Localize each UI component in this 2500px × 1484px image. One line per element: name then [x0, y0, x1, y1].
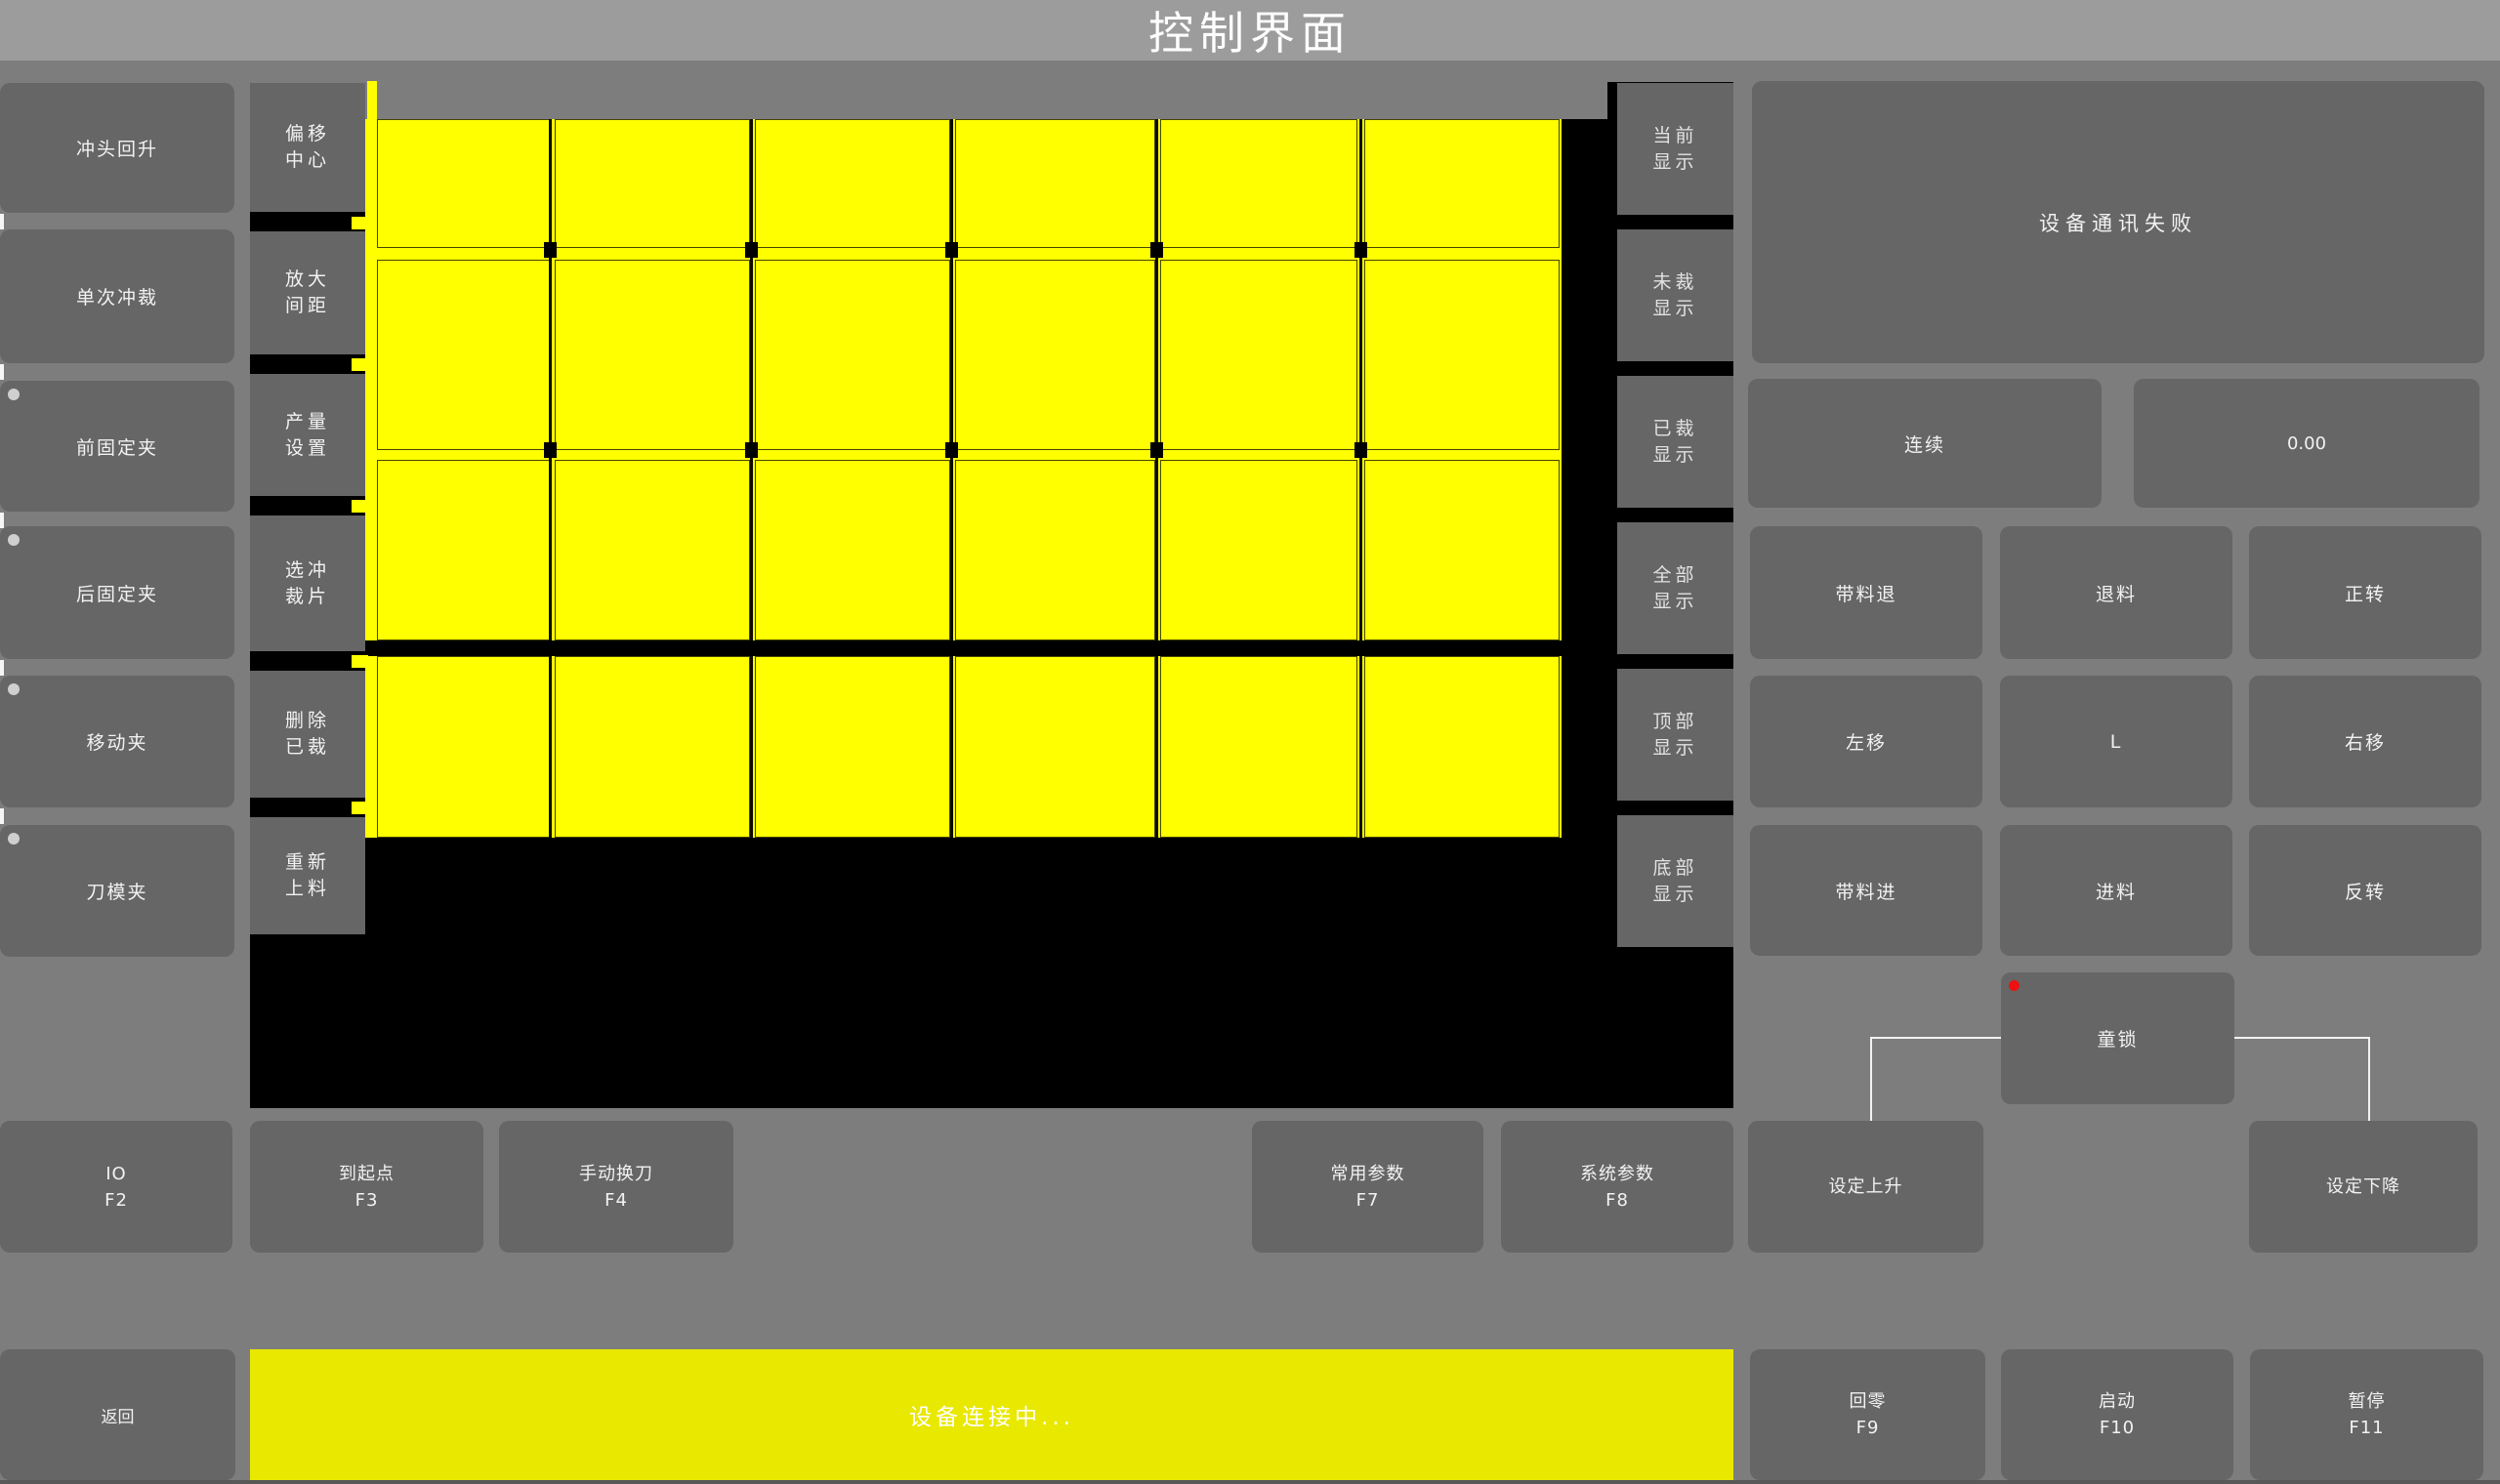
sheet-piece[interactable] [555, 260, 750, 450]
piece-separator [1359, 119, 1362, 838]
sheet-edge-tab [352, 802, 368, 814]
child-lock-button[interactable]: 童锁 [2001, 972, 2234, 1104]
tool-button-line2: 设置 [285, 435, 330, 462]
sheet-piece[interactable] [1364, 260, 1560, 450]
bottom-key-start-f10[interactable]: 启动F10 [2001, 1349, 2233, 1480]
fkey-code: F7 [1356, 1187, 1380, 1214]
tool-button-line2: 中心 [285, 147, 330, 174]
fkey-label: 常用参数 [1331, 1161, 1405, 1187]
fkey-button-common-params-f7[interactable]: 常用参数F7 [1252, 1121, 1483, 1253]
clamp-indicator-dot [8, 833, 20, 845]
left-button-label: 单次冲裁 [76, 283, 158, 309]
bottom-key-code: F10 [2100, 1415, 2135, 1441]
bottom-key-home-f9[interactable]: 回零F9 [1750, 1349, 1985, 1480]
separator-joint [745, 242, 758, 258]
separator-joint [544, 442, 557, 458]
display-button-show-bottom[interactable]: 底部显示 [1617, 815, 1733, 947]
tool-button-line1: 选冲 [285, 557, 330, 584]
value-text: 0.00 [2287, 433, 2326, 454]
edge-tick [0, 513, 4, 528]
tool-button-line2: 已裁 [285, 734, 330, 761]
connector-line [2234, 1037, 2368, 1039]
sheet-edge-tab [352, 358, 368, 371]
connection-status-bar: 设备连接中... [250, 1349, 1733, 1480]
sheet-piece[interactable] [755, 260, 950, 450]
tool-button-enlarge-spacing[interactable]: 放大间距 [250, 231, 365, 354]
sheet-piece[interactable] [555, 119, 750, 248]
connector-line [2368, 1037, 2370, 1121]
piece-separator [1155, 119, 1158, 838]
jog-button-label: 退料 [2096, 580, 2137, 606]
separator-joint [544, 242, 557, 258]
left-button-die-clamp[interactable]: 刀模夹 [0, 825, 234, 957]
tool-button-line1: 偏移 [285, 121, 330, 147]
left-button-punch-raise[interactable]: 冲头回升 [0, 83, 234, 213]
sheet [365, 119, 1562, 838]
bottom-key-code: F11 [2349, 1415, 2384, 1441]
tool-button-line1: 放大 [285, 267, 330, 293]
left-button-single-punch[interactable]: 单次冲裁 [0, 229, 234, 363]
left-button-label: 前固定夹 [76, 433, 158, 460]
fkey-label: 到起点 [339, 1161, 395, 1187]
mode-button[interactable]: 连续 [1748, 379, 2102, 508]
separator-joint [945, 242, 958, 258]
edge-tick [0, 808, 4, 824]
display-button-show-cut[interactable]: 已裁显示 [1617, 376, 1733, 508]
left-button-rear-clamp[interactable]: 后固定夹 [0, 526, 234, 659]
piece-separator [950, 119, 953, 838]
jog-button-label: 反转 [2345, 878, 2386, 904]
jog-button-label: 正转 [2345, 580, 2386, 606]
tool-button-line1: 重新 [285, 849, 330, 876]
separator-joint [1150, 442, 1163, 458]
fkey-label: 手动换刀 [579, 1161, 653, 1187]
left-button-label: 刀模夹 [86, 878, 147, 904]
sheet-piece[interactable] [1160, 260, 1357, 450]
title-bar: 控制界面 [0, 0, 2500, 61]
display-button-line2: 显示 [1652, 442, 1697, 469]
separator-joint [1354, 242, 1367, 258]
alert-dot-icon [2009, 980, 2020, 991]
separator-joint [745, 442, 758, 458]
clamp-indicator-dot [8, 389, 20, 400]
connector-line [1870, 1037, 1872, 1121]
tool-button-line1: 删除 [285, 708, 330, 734]
left-button-front-clamp[interactable]: 前固定夹 [0, 381, 234, 512]
sheet-piece[interactable] [755, 460, 950, 640]
bottom-key-label: 暂停 [2349, 1388, 2386, 1415]
jog-button-label: 右移 [2345, 728, 2386, 755]
display-button-line1: 已裁 [1652, 416, 1697, 442]
tool-button-yield-settings[interactable]: 产量设置 [250, 374, 365, 496]
fkey-button-set-raise[interactable]: 设定上升 [1748, 1121, 1983, 1253]
fkey-label: 系统参数 [1580, 1161, 1654, 1187]
fkey-code: F4 [604, 1187, 628, 1214]
left-button-label: 后固定夹 [76, 580, 158, 606]
bottom-key-label: 回零 [1850, 1388, 1887, 1415]
fkey-label: 设定上升 [1829, 1174, 1903, 1200]
tool-button-line1: 产量 [285, 409, 330, 435]
edge-tick [0, 214, 4, 229]
sheet-edge-tab [352, 217, 368, 229]
display-button-show-top[interactable]: 顶部显示 [1617, 669, 1733, 801]
jog-button-label: 左移 [1846, 728, 1887, 755]
piece-separator [549, 119, 552, 838]
sheet-piece[interactable] [377, 656, 550, 838]
tool-button-line2: 上料 [285, 876, 330, 902]
comm-status-panel: 设备通讯失败 [1752, 81, 2484, 363]
left-button-moving-clamp[interactable]: 移动夹 [0, 676, 234, 807]
piece-separator [750, 119, 753, 838]
back-button[interactable]: 返回 [0, 1349, 235, 1480]
sheet-piece[interactable] [555, 656, 750, 838]
tool-button-offset-center[interactable]: 偏移中心 [250, 83, 365, 212]
tool-button-line2: 间距 [285, 293, 330, 319]
jog-button-strip-back[interactable]: 带料退 [1750, 526, 1982, 659]
display-button-line1: 顶部 [1652, 709, 1697, 735]
value-display[interactable]: 0.00 [2134, 379, 2479, 508]
sheet-edge-tab [352, 655, 368, 668]
connector-line [1870, 1037, 2001, 1039]
tool-button-select-piece[interactable]: 选冲裁片 [250, 515, 365, 651]
bottom-edge-divider [0, 1480, 2500, 1484]
display-button-show-uncut[interactable]: 未裁显示 [1617, 229, 1733, 361]
separator-joint [945, 442, 958, 458]
fkey-button-manual-tool-change-f4[interactable]: 手动换刀F4 [499, 1121, 733, 1253]
display-button-show-all[interactable]: 全部显示 [1617, 522, 1733, 654]
sheet-piece[interactable] [955, 656, 1155, 838]
left-button-label: 冲头回升 [76, 135, 158, 161]
jog-button-label: 带料进 [1835, 878, 1896, 904]
sheet-piece[interactable] [755, 119, 950, 248]
jog-button-strip-forward[interactable]: 带料进 [1750, 825, 1982, 956]
fkey-label: IO [105, 1161, 126, 1187]
mode-label: 连续 [1904, 431, 1945, 457]
display-button-line2: 显示 [1652, 149, 1697, 176]
sheet-piece[interactable] [1364, 119, 1560, 248]
display-button-line2: 显示 [1652, 296, 1697, 322]
child-lock-label: 童锁 [2097, 1025, 2138, 1051]
display-button-line2: 显示 [1652, 882, 1697, 908]
jog-button-feed[interactable]: 进料 [2000, 825, 2232, 956]
sheet-piece[interactable] [555, 460, 750, 640]
fkey-label: 设定下降 [2326, 1174, 2400, 1200]
bottom-key-code: F9 [1856, 1415, 1880, 1441]
display-button-line1: 全部 [1652, 562, 1697, 589]
sheet-piece[interactable] [1160, 119, 1357, 248]
jog-button-unload[interactable]: 退料 [2000, 526, 2232, 659]
separator-joint [1150, 242, 1163, 258]
clamp-indicator-dot [8, 683, 20, 695]
sheet-edge-tab [352, 500, 368, 513]
jog-button-label: L [2110, 731, 2123, 753]
display-button-line1: 底部 [1652, 855, 1697, 882]
page-title: 控制界面 [1148, 0, 1352, 62]
bottom-key-label: 启动 [2099, 1388, 2136, 1415]
display-button-line2: 显示 [1652, 735, 1697, 762]
display-button-line2: 显示 [1652, 589, 1697, 615]
sheet-piece[interactable] [1160, 656, 1357, 838]
tool-button-delete-cut[interactable]: 删除已裁 [250, 671, 365, 798]
sheet-piece[interactable] [377, 460, 550, 640]
tool-button-line2: 裁片 [285, 584, 330, 610]
jog-button-forward-rotate[interactable]: 正转 [2249, 526, 2481, 659]
back-label: 返回 [102, 1403, 135, 1427]
left-button-label: 移动夹 [86, 728, 147, 755]
sheet-piece[interactable] [955, 119, 1155, 248]
fkey-code: F8 [1605, 1187, 1629, 1214]
sheet-piece[interactable] [377, 119, 550, 248]
jog-button-move-right[interactable]: 右移 [2249, 676, 2481, 807]
fkey-code: F3 [355, 1187, 379, 1214]
tool-button-reload-material[interactable]: 重新上料 [250, 817, 365, 934]
sheet-piece[interactable] [1364, 656, 1560, 838]
separator-joint [1354, 442, 1367, 458]
sheet-piece[interactable] [1160, 460, 1357, 640]
display-button-line1: 当前 [1652, 123, 1697, 149]
sheet-piece[interactable] [755, 656, 950, 838]
clamp-indicator-dot [8, 534, 20, 546]
edge-tick [0, 364, 4, 380]
fkey-code: F2 [104, 1187, 128, 1214]
sheet-piece[interactable] [1364, 460, 1560, 640]
jog-button-l-center[interactable]: L [2000, 676, 2232, 807]
sheet-piece[interactable] [377, 260, 550, 450]
fkey-button-origin-f3[interactable]: 到起点F3 [250, 1121, 483, 1253]
fkey-button-system-params-f8[interactable]: 系统参数F8 [1501, 1121, 1733, 1253]
jog-button-reverse-rotate[interactable]: 反转 [2249, 825, 2481, 956]
fkey-button-io-f2[interactable]: IOF2 [0, 1121, 232, 1253]
sheet-piece[interactable] [955, 260, 1155, 450]
jog-button-label: 进料 [2096, 878, 2137, 904]
display-button-line1: 未裁 [1652, 269, 1697, 296]
jog-button-label: 带料退 [1835, 580, 1896, 606]
bottom-key-pause-f11[interactable]: 暂停F11 [2250, 1349, 2483, 1480]
thick-waste-band [365, 640, 1562, 656]
sheet-piece[interactable] [955, 460, 1155, 640]
fkey-button-set-lower[interactable]: 设定下降 [2249, 1121, 2478, 1253]
display-button-show-current[interactable]: 当前显示 [1617, 83, 1733, 215]
sheet-origin-marker [367, 81, 377, 119]
edge-tick [0, 660, 4, 676]
jog-button-move-left[interactable]: 左移 [1750, 676, 1982, 807]
